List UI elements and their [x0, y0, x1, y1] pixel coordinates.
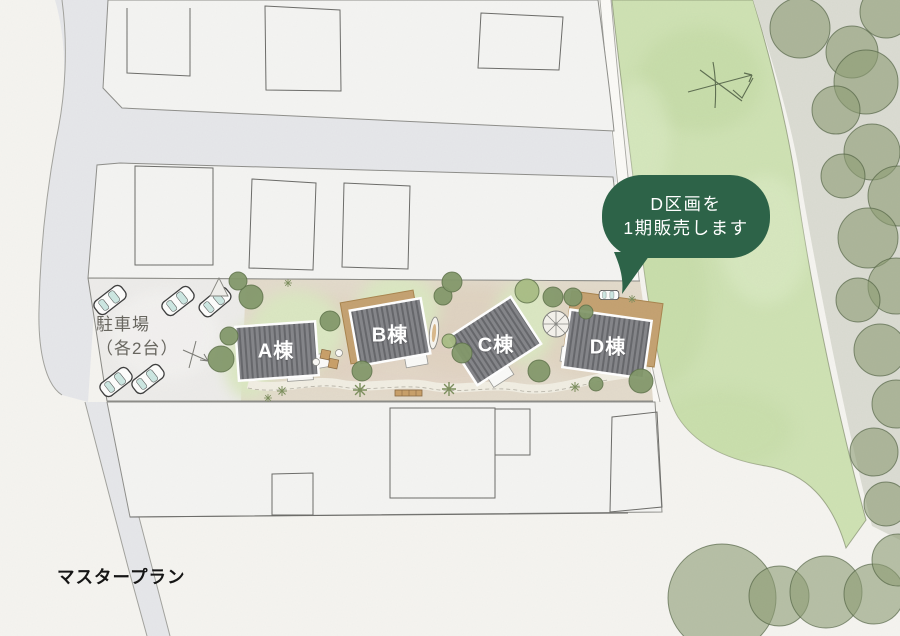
- callout-line1: D区画を: [650, 193, 721, 217]
- plan-title: マスタープラン: [57, 564, 185, 589]
- callout-tail: [606, 252, 658, 296]
- building-a-label: A棟: [258, 335, 294, 364]
- parking-label-line1: 駐車場: [96, 313, 178, 337]
- phase1-sale-callout: D区画を 1期販売します: [602, 175, 770, 258]
- building-c-label: C棟: [478, 329, 514, 358]
- building-b-label: B棟: [372, 319, 408, 348]
- parking-label-line2: （各2台）: [96, 337, 178, 361]
- building-d-label: D棟: [590, 331, 626, 360]
- parking-label: 駐車場 （各2台）: [96, 313, 178, 361]
- master-plan-canvas: A棟 B棟 C棟 D棟 駐車場 （各2台） D区画を 1期販売します マスタープ…: [0, 0, 900, 636]
- callout-line2: 1期販売します: [623, 217, 748, 241]
